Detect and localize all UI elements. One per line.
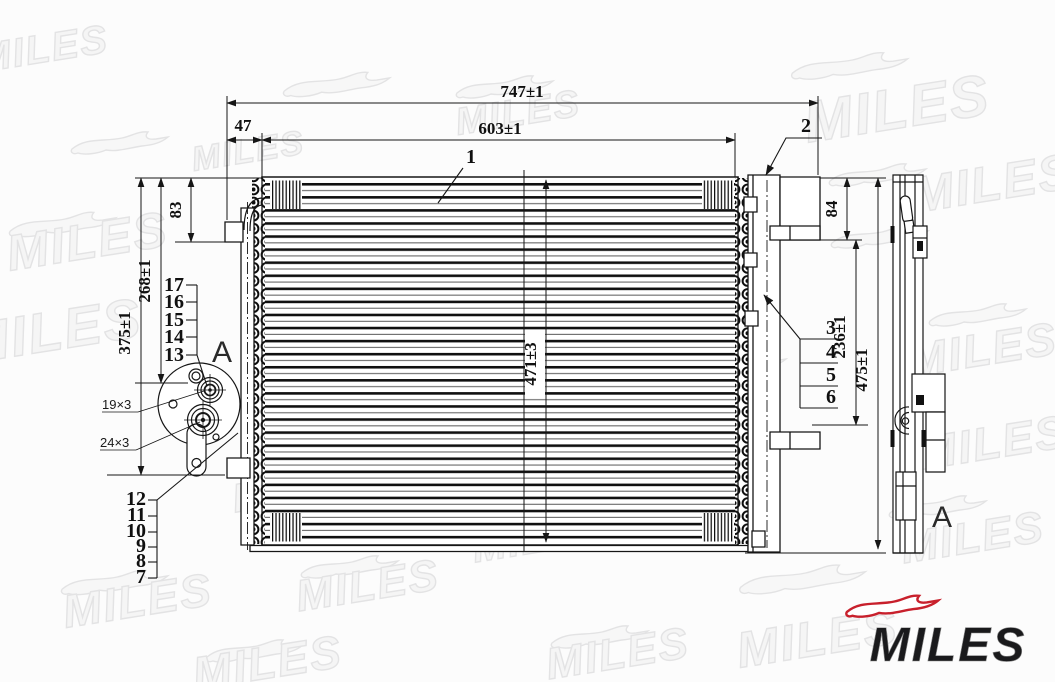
tank-clip (745, 311, 758, 326)
tank-clip (752, 531, 765, 547)
fin-hatch-top-left (270, 181, 302, 210)
side-mid-bracket-lower (926, 412, 945, 472)
dim-total-width-text: 747±1 (500, 82, 543, 101)
watermark-text: MILES (0, 17, 112, 81)
bottom-plate (250, 546, 748, 552)
callout-13: 13 (164, 344, 184, 366)
dim-core-height-text: 471±3 (521, 342, 540, 385)
dim-left-total-height-text: 375±1 (115, 311, 134, 354)
port-lower-label: 24×3 (100, 435, 129, 450)
side-lower-box (896, 472, 916, 520)
dim-inlet-offset-text: 47 (235, 116, 253, 135)
right-bottom-bracket (770, 432, 820, 449)
dim-right-top-offset: 84 (822, 178, 847, 240)
side-view-label: A (932, 501, 952, 534)
side-clip (922, 430, 926, 447)
dim-top-left-offset-text: 83 (166, 202, 185, 219)
brand-logo: MILES (846, 596, 1026, 672)
dim-right-total-height-text: 475±1 (852, 348, 871, 391)
core-tube-texture (265, 181, 736, 542)
dim-left-upper-height-text: 268±1 (135, 259, 154, 302)
callout-7: 7 (136, 566, 146, 588)
callout-1: 1 (466, 146, 476, 168)
callout-2: 2 (801, 115, 811, 137)
watermark-text: MILES (189, 625, 346, 682)
drawing-sheet: MILES MILES MILES MILES MILES MILES MILE… (0, 0, 1055, 682)
tank-clip (744, 197, 757, 212)
callout-4: 4 (826, 341, 836, 363)
dim-core-width: 603±1 (262, 119, 735, 140)
callout-3: 3 (826, 317, 836, 339)
left-top-bracket (225, 222, 243, 242)
logo-text: MILES (870, 619, 1027, 672)
watermark-text: MILES (293, 550, 443, 621)
dim-core-width-text: 603±1 (478, 119, 521, 138)
callout-ladder-7-12: 12 11 10 9 8 7 (126, 433, 238, 588)
fin-hatch-top-right (702, 181, 734, 210)
right-top-bracket-foot (770, 226, 820, 240)
left-bottom-bracket (227, 458, 250, 478)
callout-5: 5 (826, 364, 836, 386)
watermark-text: MILES (908, 143, 1055, 224)
tank-clip (744, 253, 757, 267)
side-mid-bracket (912, 374, 945, 412)
fin-hatch-bottom-left (270, 513, 302, 542)
detail-view-label: A (212, 336, 232, 369)
dim-top-left-offset: 83 (166, 178, 191, 242)
dim-right-top-offset-text: 84 (822, 200, 841, 218)
fin-hatch-bottom-right (702, 513, 734, 542)
side-clip (891, 226, 895, 243)
port-upper-label: 19×3 (102, 397, 131, 412)
right-header-dots (735, 178, 748, 544)
side-clip (891, 430, 895, 447)
callout-6: 6 (826, 386, 836, 408)
